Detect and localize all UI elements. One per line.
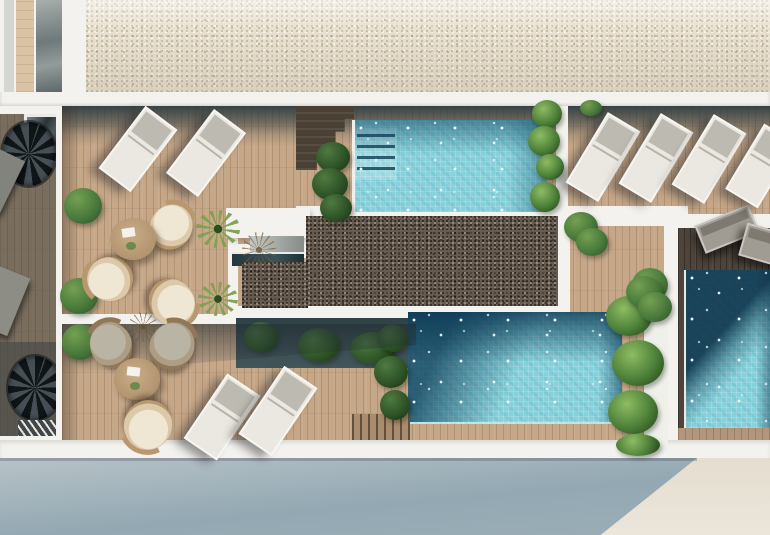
shrub xyxy=(64,188,102,224)
upper-pool-plants-left xyxy=(312,142,356,222)
left-terrace xyxy=(0,106,62,455)
table-plant-pot xyxy=(130,382,140,390)
rooftop-terrace-render xyxy=(0,0,770,535)
sun-lounger xyxy=(238,366,317,456)
gravel-shading xyxy=(86,0,770,92)
lounger-headrest xyxy=(747,228,770,248)
facade-blue-shadow xyxy=(0,458,770,535)
table-tray xyxy=(121,227,135,238)
wicker-chair xyxy=(117,393,179,456)
shrub xyxy=(532,100,562,128)
seating-set-lower xyxy=(60,310,320,458)
round-table xyxy=(114,358,160,400)
shrub xyxy=(638,292,672,322)
private-pool xyxy=(684,270,770,428)
shrub xyxy=(380,390,410,420)
roof-glass-strip xyxy=(36,0,62,92)
private-unit xyxy=(664,214,770,455)
roof-wood-strip xyxy=(16,0,34,92)
small-shrub xyxy=(580,100,602,116)
shrub xyxy=(530,182,560,212)
table-plant-pot xyxy=(126,242,136,250)
upper-pool xyxy=(352,120,547,212)
shrub xyxy=(374,356,408,388)
yucca-plant xyxy=(196,210,240,248)
planter-shrub xyxy=(612,340,664,386)
roof-edge-strip xyxy=(4,0,14,92)
table-tray xyxy=(127,366,141,376)
water-sparkles xyxy=(408,312,622,422)
dry-twig-plant xyxy=(242,232,276,268)
planter-shrub xyxy=(616,434,660,456)
shrub xyxy=(320,194,352,222)
facade-top-line xyxy=(0,458,697,461)
round-table xyxy=(110,218,156,260)
stair-tower-roof xyxy=(0,0,86,92)
planter-shrub xyxy=(608,390,658,434)
upper-pool-plants-right xyxy=(528,100,564,218)
upper-gravel-roof xyxy=(86,0,770,92)
spiral-staircase xyxy=(8,356,62,420)
gravel-block-main xyxy=(306,216,558,306)
water-sparkles xyxy=(355,120,547,212)
terrace-parapet-top xyxy=(0,106,62,114)
right-deck-shrubs-lower xyxy=(626,276,674,322)
water-sparkles xyxy=(686,270,770,428)
shrub xyxy=(536,154,564,180)
facade-shadow-area xyxy=(0,458,770,535)
lower-pool xyxy=(408,312,622,424)
lounger-headrest xyxy=(214,379,255,418)
shrub xyxy=(576,228,608,256)
shrub xyxy=(528,126,560,156)
right-deck-shrubs-upper xyxy=(564,212,610,256)
wicker-chair xyxy=(85,255,135,303)
